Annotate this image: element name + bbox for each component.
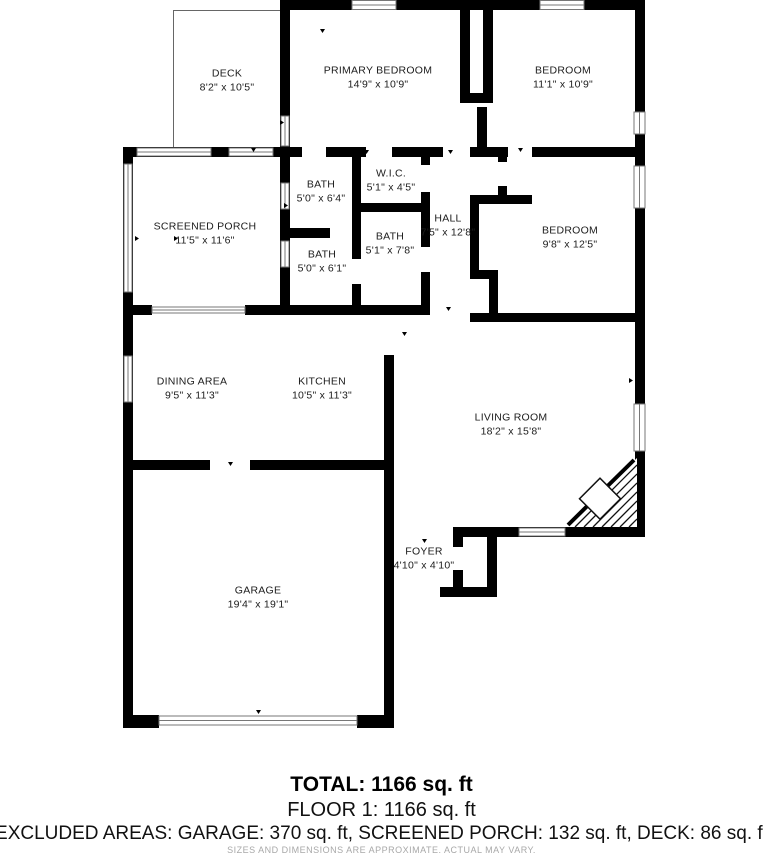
room-label-deck: DECK 8'2" x 10'5" (200, 67, 255, 94)
room-name: BATH (297, 178, 346, 192)
walls (123, 0, 645, 728)
room-dims: 10'5" x 11'3" (292, 389, 352, 403)
room-name: BEDROOM (533, 64, 593, 78)
room-label-bath-3: BATH 5'0" x 6'1" (298, 248, 347, 275)
room-label-screened-porch: SCREENED PORCH 11'5" x 11'6" (154, 220, 257, 247)
room-dims: 8'2" x 10'5" (200, 81, 255, 95)
room-name: DINING AREA (157, 375, 227, 389)
room-name: GARAGE (228, 584, 289, 598)
room-label-bedroom-right: BEDROOM 9'8" x 12'5" (542, 224, 598, 251)
room-dims: 5'0" x 6'1" (298, 262, 347, 276)
room-name: LIVING ROOM (475, 411, 548, 425)
room-name: HALL (421, 212, 476, 226)
floor-plan-page: DECK 8'2" x 10'5" PRIMARY BEDROOM 14'9" … (0, 0, 763, 854)
floor-plan: DECK 8'2" x 10'5" PRIMARY BEDROOM 14'9" … (0, 0, 763, 763)
room-dims: 4'10" x 4'10" (394, 559, 455, 573)
room-label-living-room: LIVING ROOM 18'2" x 15'8" (475, 411, 548, 438)
room-name: BATH (298, 248, 347, 262)
room-dims: 7'5" x 12'8" (421, 226, 476, 240)
room-label-bedroom-top: BEDROOM 11'1" x 10'9" (533, 64, 593, 91)
room-dims: 14'9" x 10'9" (324, 78, 432, 92)
room-dims: 11'5" x 11'6" (154, 234, 257, 248)
room-dims: 5'0" x 6'4" (297, 192, 346, 206)
room-label-bath-1: BATH 5'0" x 6'4" (297, 178, 346, 205)
room-name: W.I.C. (367, 167, 416, 181)
room-name: BEDROOM (542, 224, 598, 238)
floor1-area-text: FLOOR 1: 1166 sq. ft (287, 799, 476, 822)
room-name: DECK (200, 67, 255, 81)
room-name: BATH (366, 230, 415, 244)
room-label-hall: HALL 7'5" x 12'8" (421, 212, 476, 239)
disclaimer-text: SIZES AND DIMENSIONS ARE APPROXIMATE. AC… (227, 845, 536, 854)
room-dims: 9'5" x 11'3" (157, 389, 227, 403)
room-name: KITCHEN (292, 375, 352, 389)
room-dims: 9'8" x 12'5" (542, 238, 598, 252)
corner-fireplace (565, 458, 637, 527)
room-label-kitchen: KITCHEN 10'5" x 11'3" (292, 375, 352, 402)
floor-plan-drawing (0, 0, 763, 763)
total-area-text: TOTAL: 1166 sq. ft (290, 773, 472, 797)
room-label-garage: GARAGE 19'4" x 19'1" (228, 584, 289, 611)
room-label-foyer: FOYER 4'10" x 4'10" (394, 545, 455, 572)
room-name: FOYER (394, 545, 455, 559)
room-label-dining-area: DINING AREA 9'5" x 11'3" (157, 375, 227, 402)
excluded-areas-text: EXCLUDED AREAS: GARAGE: 370 sq. ft, SCRE… (0, 823, 763, 845)
room-label-wic: W.I.C. 5'1" x 4'5" (367, 167, 416, 194)
room-label-bath-2: BATH 5'1" x 7'8" (366, 230, 415, 257)
room-label-primary-bedroom: PRIMARY BEDROOM 14'9" x 10'9" (324, 64, 432, 91)
room-dims: 11'1" x 10'9" (533, 78, 593, 92)
room-name: SCREENED PORCH (154, 220, 257, 234)
room-dims: 18'2" x 15'8" (475, 425, 548, 439)
room-name: PRIMARY BEDROOM (324, 64, 432, 78)
room-dims: 5'1" x 4'5" (367, 181, 416, 195)
room-dims: 19'4" x 19'1" (228, 598, 289, 612)
room-dims: 5'1" x 7'8" (366, 244, 415, 258)
